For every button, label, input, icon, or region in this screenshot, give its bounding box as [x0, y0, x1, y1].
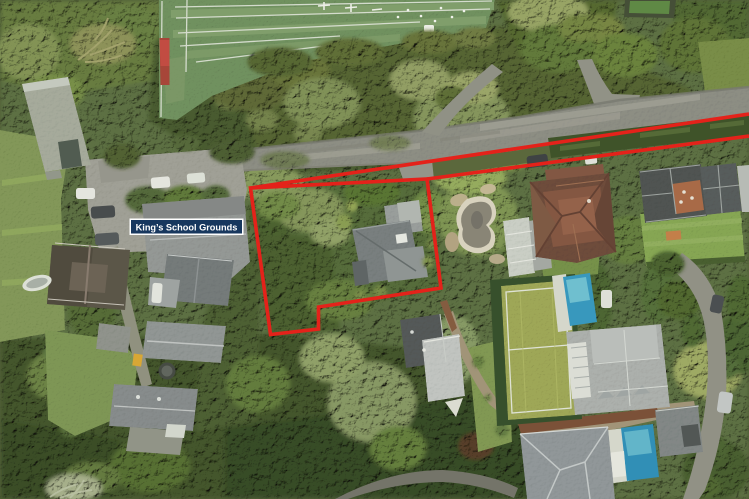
svg-text:King’s School Grounds: King’s School Grounds	[136, 223, 238, 233]
